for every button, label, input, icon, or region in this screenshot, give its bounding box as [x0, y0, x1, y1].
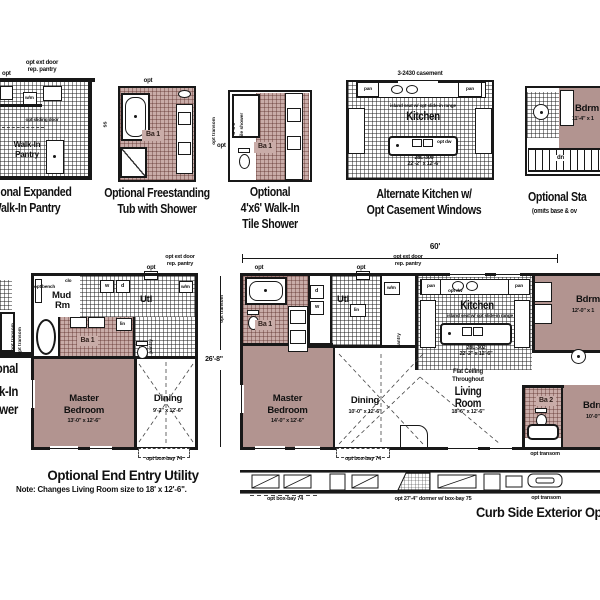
wall: [561, 385, 563, 447]
kitchen-label: Kitchen: [395, 111, 451, 123]
window: [450, 272, 485, 277]
wm-label: w/m: [25, 96, 34, 101]
window: [490, 446, 512, 451]
cabinet: [178, 142, 191, 155]
sink: [290, 330, 306, 344]
washer-label: w: [315, 305, 319, 311]
sink: [178, 90, 191, 98]
pan-label-right: pan: [509, 284, 529, 289]
master-label2: Bedroom: [250, 406, 325, 416]
sink: [70, 317, 87, 328]
closet: [534, 282, 552, 302]
ba2-tub: [527, 424, 559, 440]
elev-dormer-label: opt 27'-4" dormer w/ box-bay 75: [390, 497, 476, 503]
bdrm1-dim: 12'-0" x 1: [572, 309, 594, 315]
panel5-title-line2: (omits base & ov: [532, 208, 577, 215]
wm-label: w/m: [387, 286, 396, 291]
panel1-title-line1: Optional Expanded: [0, 186, 99, 199]
opt-dw-label: opt dw: [437, 140, 451, 145]
panel4-title-line2: Opt Casement Windows: [361, 204, 487, 217]
elevation-title: Curb Side Exterior Option: [476, 506, 600, 520]
dim-tick: [557, 254, 558, 263]
box-bay-label: opt box-bay 74: [134, 457, 194, 463]
pantry-room-label: Pantry: [8, 151, 46, 159]
island-sink: [412, 139, 422, 147]
sliding-door-label: opt sliding door: [16, 118, 68, 123]
range: [287, 108, 301, 122]
wall: [240, 447, 600, 450]
opt-label: opt: [352, 265, 370, 271]
pantry-label: pantry: [398, 333, 403, 348]
flat-ceiling-label1: Flat Ceiling: [448, 369, 488, 375]
shower-size-label: 4' x 6': [233, 122, 238, 135]
panel2-title-line1: Optional Freestanding: [98, 187, 217, 200]
bdrm-label: Bdrm: [572, 104, 600, 114]
island-sink: [473, 327, 483, 336]
wall: [88, 78, 92, 180]
opt-ext-door-label: opt ext door: [384, 255, 432, 261]
ba1-label: Ba 1: [254, 142, 276, 153]
casement-label: 3-2430 casement: [388, 71, 452, 77]
dining-label: Dining: [148, 394, 188, 404]
opt-label: opt: [143, 265, 159, 271]
wall: [380, 276, 382, 345]
kitchen-label: Kitchen: [447, 300, 507, 312]
door-box: [0, 86, 13, 100]
wall: [522, 385, 564, 388]
fragment-title-line1: Optional: [0, 362, 18, 376]
ba1-label: Ba 1: [255, 320, 275, 330]
pan-label-right: pan: [460, 87, 480, 92]
casement-window: [398, 78, 438, 83]
window: [496, 272, 520, 277]
master-dim: 13'-0" x 12'-6": [49, 419, 119, 425]
master-label1: Master: [49, 394, 119, 404]
shower-type-label: tile shower: [241, 113, 246, 138]
window: [295, 446, 320, 451]
depth-dim-label: 26'-8": [198, 356, 230, 363]
opt-ext-door-label: opt ext door: [160, 255, 200, 261]
dining-dim: 10'-0" x 12'-6": [339, 410, 391, 416]
elev-transom-label: opt transom: [524, 496, 568, 502]
island-note: island seat w/ opt slide-in range: [384, 104, 462, 109]
base-cabinet: [514, 300, 530, 348]
island-sink: [423, 139, 433, 147]
panel3-title-line3: Tile Shower: [211, 218, 330, 231]
sink: [88, 317, 105, 328]
walkin-label: Walk-In: [8, 141, 46, 149]
rep-pantry-label: rep. pantry: [384, 262, 432, 268]
kitchen-dim: 22'-2" x 12'-6": [454, 352, 498, 358]
fragment-floor: [0, 280, 12, 310]
wall: [58, 317, 60, 356]
window: [448, 446, 478, 451]
dryer-label: d: [121, 284, 124, 290]
toilet-bowl: [137, 346, 148, 359]
bdrm1-label: Bdrm: [576, 295, 600, 305]
drain-dot: [134, 115, 137, 118]
wall: [532, 350, 600, 353]
elev-box-bay-label: opt box-bay 74: [255, 497, 315, 503]
window: [239, 385, 244, 413]
ba1-label: Ba 1: [77, 336, 98, 346]
opt-ext-door-label: opt ext door: [14, 60, 70, 66]
wall: [0, 78, 95, 82]
flat-ceiling-label2: Throughout: [448, 377, 488, 383]
opt-label: opt: [140, 78, 156, 84]
panel2-title-line2: Tub with Shower: [98, 203, 217, 216]
wall: [0, 176, 92, 180]
clo-label: clo: [65, 279, 71, 284]
wall: [31, 273, 34, 450]
window: [50, 446, 78, 451]
elevation-drawing: [240, 470, 600, 497]
lin-label: lin: [354, 308, 359, 313]
opt-transom-label: opt transom: [213, 117, 218, 145]
toilet-tank: [247, 310, 259, 315]
panel5-title-line1: Optional Sta: [528, 191, 587, 204]
range: [287, 136, 301, 150]
opt-label: opt: [250, 265, 268, 271]
ba2-label: Ba 2: [536, 396, 556, 406]
island-dim: 22'-2" x 12'-6": [396, 162, 452, 168]
fragment-title-line3: Shower: [0, 403, 18, 417]
ba1-label: Ba 1: [142, 130, 164, 141]
marker-dot: [396, 144, 399, 147]
mudroom-label2: Rm: [55, 301, 70, 311]
panel3-title-line2: 4'x6' Walk-In: [211, 202, 330, 215]
opt-label: opt: [2, 71, 11, 77]
sliding-door-line: [2, 127, 44, 128]
opt-transom-label: opt transom: [12, 323, 17, 351]
opt-transom-label: opt transom: [221, 295, 226, 323]
soaker-tub: [36, 319, 56, 355]
sink: [290, 310, 306, 324]
bench: [35, 279, 42, 303]
dryer-label: d: [315, 289, 318, 295]
wall: [133, 317, 135, 357]
ss-label: ss: [104, 121, 110, 127]
sink: [406, 85, 418, 94]
sink: [466, 281, 478, 291]
fragment-title-line2: Walk-In: [0, 385, 18, 399]
marker-dot: [577, 355, 580, 358]
wall: [330, 276, 332, 345]
wall: [240, 273, 600, 276]
bdrm-dim: 11'-4" x 1: [572, 117, 594, 123]
box-bay-label: opt box-bay 74: [336, 457, 390, 463]
dim-tick: [242, 254, 243, 263]
toilet-bowl: [239, 154, 250, 169]
rep-pantry-label: rep. pantry: [160, 262, 200, 268]
pantry-label: pantry: [150, 339, 155, 354]
pan-label-left: pan: [358, 87, 378, 92]
base-cabinet: [348, 108, 365, 154]
window: [255, 446, 285, 451]
window: [90, 446, 112, 451]
living-dim: 18'-6" x 12'-6": [442, 410, 494, 416]
opt-dw-label: opt dw: [448, 289, 462, 294]
base-cabinet: [475, 108, 492, 154]
master-dim: 14'-0" x 12'-6": [250, 419, 325, 425]
washer-label: w: [105, 284, 109, 290]
utility-label: Utl: [334, 295, 352, 305]
sink: [391, 85, 403, 94]
ee-note: Note: Changes Living Room size to 18' x …: [16, 486, 187, 494]
closet: [534, 304, 552, 324]
wm-label: w/m: [181, 285, 190, 290]
opt-transom-label: opt transom: [526, 452, 564, 458]
floorplan-sheet: w/m opt ext door rep. pantry opt opt sli…: [0, 0, 600, 600]
island-sink: [462, 327, 472, 336]
utility-label: Utl: [140, 295, 152, 305]
dn-label: dn: [556, 155, 565, 161]
marker-dot: [448, 332, 451, 335]
toilet-tank: [238, 148, 250, 153]
lin-label: lin: [120, 322, 125, 327]
toilet-tank: [535, 408, 547, 413]
opt-transom-label: opt transom: [19, 327, 24, 355]
dim-line-268: [220, 370, 221, 447]
marker-dot: [540, 111, 543, 114]
master-label1: Master: [250, 394, 325, 404]
marker-dot: [53, 155, 56, 158]
panel3-title-line1: Optional: [211, 186, 330, 199]
master-label2: Bedroom: [49, 406, 119, 416]
shower: [120, 147, 147, 178]
rep-pantry-label: rep. pantry: [14, 67, 70, 73]
island-note: island seat w/ opt slide-in range: [438, 314, 522, 319]
living-label1: Living: [448, 386, 489, 398]
panel1-title-line2: Walk-In Pantry: [0, 202, 99, 215]
drain-dot: [264, 289, 267, 292]
base-cabinet: [420, 300, 436, 348]
dining-dim: 9'-2" x 12'-6": [141, 409, 195, 415]
opt-label: opt: [217, 143, 226, 149]
cabinet: [178, 112, 191, 125]
window: [30, 380, 35, 408]
panel4-title-line1: Alternate Kitchen w/: [361, 188, 487, 201]
wall: [31, 273, 198, 276]
dining-label: Dining: [345, 396, 385, 406]
pan-label-left: pan: [422, 284, 440, 289]
bdrm2-label: Bdrm: [583, 401, 600, 411]
ee-title: Optional End Entry Utility: [19, 468, 228, 483]
bdrm2-dim: 10'-0": [586, 415, 600, 421]
width-dim-label: 60': [420, 243, 450, 251]
cabinet: [43, 86, 62, 101]
wall: [240, 273, 243, 450]
